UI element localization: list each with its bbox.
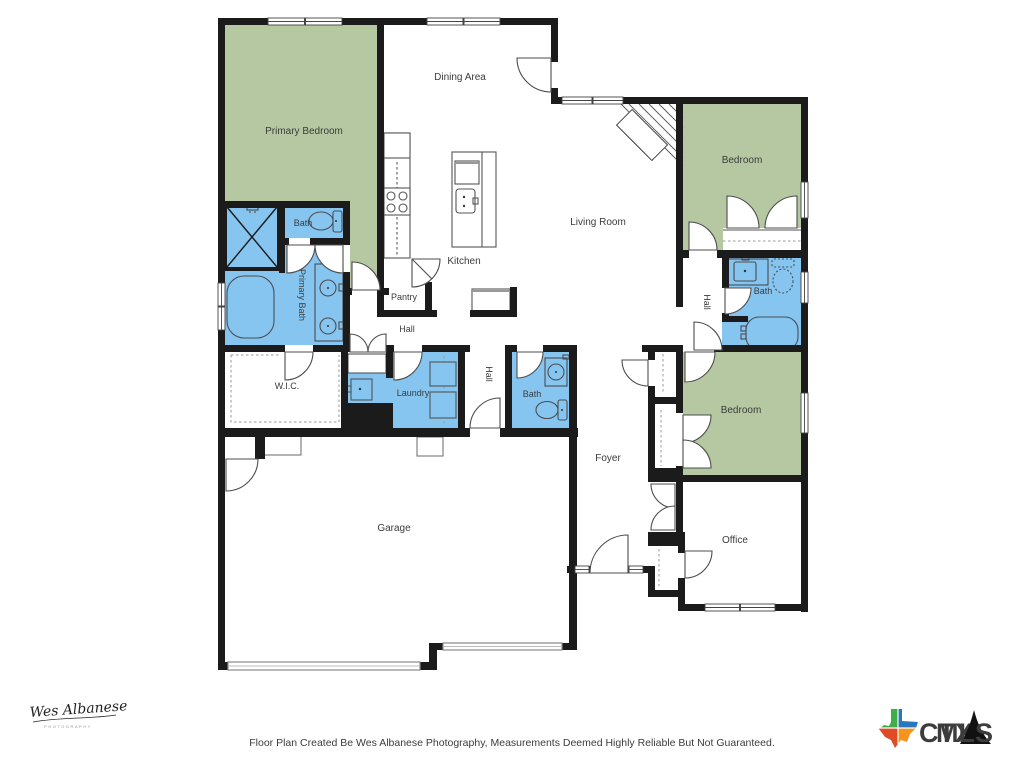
room-label-garage: Garage <box>377 523 411 534</box>
room-label-dining-area: Dining Area <box>434 72 486 83</box>
wall-segment <box>341 403 393 430</box>
wall-segment <box>722 316 748 322</box>
wall-segment <box>543 345 577 352</box>
fireplace-icon <box>617 104 683 166</box>
floor-plan-page: Primary Bedroom Dining Area Bedroom Livi… <box>0 0 1024 768</box>
wall-segment <box>313 345 350 352</box>
wall-segment <box>343 288 352 295</box>
wall-segment <box>683 250 689 258</box>
floor-plan-drawing: Primary Bedroom Dining Area Bedroom Livi… <box>0 0 1024 768</box>
built-in-nook <box>472 289 510 312</box>
wall-segment <box>218 345 285 352</box>
door-swing <box>694 322 722 350</box>
wall-segment <box>510 287 517 312</box>
room-label-primary-bedroom: Primary Bedroom <box>265 126 343 137</box>
wall-segment <box>648 404 655 468</box>
wall-segment <box>343 272 350 352</box>
wall-segment <box>676 475 805 482</box>
kitchen-counter <box>384 133 410 258</box>
room-label-bedroom-bottom: Bedroom <box>721 405 762 416</box>
room-label-primary-bath: Primary Bath <box>297 269 307 321</box>
wall-segment <box>429 648 437 670</box>
wall-segment <box>377 18 384 295</box>
room-label-hall-kitchen: Hall <box>399 324 415 334</box>
room-label-hall-center: Hall <box>484 366 494 382</box>
door-swing <box>685 551 712 578</box>
photographer-signature: Wes Albanese PHOTOGRAPHY <box>29 698 128 729</box>
room-label-hall-right: Hall <box>702 294 712 310</box>
door-swing <box>651 506 675 530</box>
wall-segment <box>648 348 655 360</box>
door-swing <box>350 334 368 352</box>
door-swing <box>590 535 628 573</box>
water-heater-box <box>417 437 443 456</box>
door-swing <box>517 58 551 92</box>
room-label-living-room: Living Room <box>570 217 626 228</box>
wall-segment <box>648 475 683 482</box>
wall-segment <box>386 352 393 378</box>
wall-segment <box>218 18 225 670</box>
room-label-wic: W.I.C. <box>275 381 300 391</box>
door-swing <box>368 334 386 352</box>
wall-segment <box>676 482 683 532</box>
room-label-bedroom-top: Bedroom <box>722 155 763 166</box>
wall-segment <box>425 282 432 315</box>
wall-segment <box>678 539 685 553</box>
wall-segment <box>505 345 512 435</box>
door-swing <box>226 459 258 491</box>
wall-segment <box>343 201 350 245</box>
door-swing <box>651 484 675 508</box>
door-swing <box>285 352 313 380</box>
wall-segment <box>678 578 685 611</box>
room-label-bath-center: Bath <box>523 389 542 399</box>
room-label-bath-right: Bath <box>754 286 773 296</box>
wall-segment <box>722 258 729 288</box>
room-label-laundry: Laundry <box>397 388 430 398</box>
wall-segment <box>569 345 577 650</box>
wall-segment <box>714 345 805 352</box>
signature-text: Wes Albanese <box>29 698 128 721</box>
wall-segment <box>676 104 683 307</box>
wall-segment <box>341 352 348 407</box>
room-label-pantry: Pantry <box>391 292 418 302</box>
door-swing <box>470 398 500 428</box>
wall-segment <box>386 403 393 430</box>
ctxmls-logo: CTX MLS <box>878 708 993 749</box>
signature-subtext: PHOTOGRAPHY <box>44 724 92 729</box>
hall-closet-box <box>348 354 386 373</box>
wall-segment <box>717 250 805 258</box>
wall-segment <box>458 345 465 435</box>
toilet-icon-primary <box>309 211 342 232</box>
room-label-foyer: Foyer <box>595 453 621 464</box>
wall-segment <box>470 310 517 317</box>
room-label-office: Office <box>722 535 748 546</box>
wall-segment <box>551 18 558 62</box>
wall-segment <box>377 295 384 317</box>
room-label-kitchen: Kitchen <box>447 256 480 267</box>
wall-segment <box>386 345 394 352</box>
logo-text-mls: MLS <box>936 718 993 748</box>
wall-segment <box>676 352 683 413</box>
footer-disclaimer: Floor Plan Created Be Wes Albanese Photo… <box>249 737 774 749</box>
wall-segment <box>255 433 265 459</box>
kitchen-island <box>452 152 496 247</box>
wall-segment <box>801 97 808 612</box>
door-swing <box>622 360 648 386</box>
texas-icon <box>878 708 918 749</box>
room-label-primary-wc: Bath <box>294 218 313 228</box>
wall-segment <box>283 238 289 245</box>
wall-segment <box>648 532 685 539</box>
toilet-icon-center-bath <box>536 400 567 420</box>
